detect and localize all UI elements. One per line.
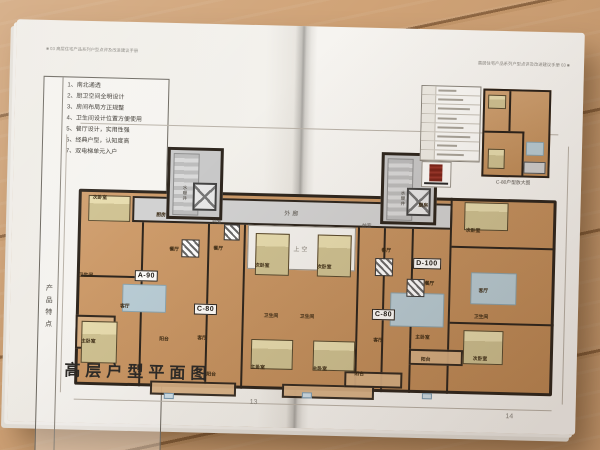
elevation-ground-line — [424, 182, 448, 185]
room-label: 客厅 — [120, 302, 130, 309]
corridor-label: 外廊 — [284, 208, 300, 217]
micro-text-bar — [437, 145, 457, 147]
room-label: 主卧室 — [312, 364, 327, 372]
room-label: 次卧室 — [317, 263, 332, 271]
dimension-marker — [302, 392, 312, 398]
hatched-table — [224, 224, 240, 240]
inset-table-label-cell — [422, 104, 436, 113]
bed — [488, 95, 506, 109]
inset-table-label-cell — [422, 114, 436, 123]
room-label: 次卧室 — [466, 226, 481, 234]
inset-caption: C-80户型放大图 — [483, 178, 544, 187]
micro-text-bar — [437, 154, 464, 157]
inset-table-label-cell — [422, 86, 436, 95]
micro-text-bar — [438, 89, 456, 91]
right-page-header: 高层住宅产品系列户型点评及改进建议手册 03 ■ — [478, 59, 570, 68]
room-label: 次卧室 — [255, 261, 270, 269]
rug — [470, 272, 517, 305]
room-label: 餐厅 — [169, 245, 179, 252]
room-label: 阳台 — [354, 369, 364, 376]
inset-table-label-cell — [421, 150, 435, 159]
inset-table-value-cell — [436, 86, 480, 95]
front-room-label: 前室 — [362, 222, 372, 229]
room-label: 阳台 — [421, 355, 431, 362]
inset-table-value-cell — [436, 114, 480, 123]
inset-spec-table — [420, 85, 482, 162]
bed — [317, 235, 352, 278]
inset-table-value-cell — [436, 105, 480, 114]
room-label: 餐厅 — [425, 279, 435, 286]
micro-text-bar — [438, 99, 463, 102]
page-number-right: 14 — [505, 413, 513, 420]
room-label: 餐厅 — [381, 246, 391, 253]
inset-table-row — [421, 150, 479, 161]
room-label: 客厅 — [478, 286, 488, 293]
dimension-marker — [422, 393, 432, 399]
inset-table-value-cell — [435, 123, 479, 132]
unit-type-badge: A-90 — [135, 270, 158, 282]
plan-caption: 高层户型平面图 — [64, 356, 212, 384]
elevator-icon — [192, 182, 217, 211]
inset-table-value-cell — [435, 132, 479, 141]
room-label: 客厅 — [197, 334, 207, 341]
bed — [255, 233, 290, 276]
plumbing-shaft-label: 水暖井 — [181, 185, 188, 201]
stair-elevator-core — [166, 147, 224, 220]
open-booklet: ■ 03 高层住宅产品系列户型点评及改进建议手册 高层住宅产品系列户型点评及改进… — [7, 19, 585, 435]
inset-table-label-cell — [421, 141, 435, 150]
unit-type-badge: C-80 — [194, 304, 217, 316]
room-label: 主卧室 — [250, 363, 265, 371]
room-label: 卫生间 — [79, 271, 94, 279]
dimension-marker — [164, 393, 174, 399]
room-label: 餐厅 — [213, 244, 223, 251]
hatched-table — [181, 239, 199, 257]
room-label: 次卧室 — [93, 193, 108, 201]
left-page-header: ■ 03 高层住宅产品系列户型点评及改进建议手册 — [46, 45, 138, 54]
unit-type-badge: C-80 — [372, 309, 395, 321]
unit-type-badge: D-100 — [413, 258, 441, 270]
inset-table-label-cell — [422, 95, 436, 104]
room-label: 厨房 — [156, 211, 166, 218]
wall — [508, 91, 511, 131]
micro-text-bar — [437, 126, 463, 129]
hatched-table — [406, 279, 424, 297]
hatched-table — [375, 258, 393, 276]
page-number-left: 13 — [250, 399, 258, 406]
micro-text-bar — [438, 108, 470, 111]
room-label: 主卧室 — [81, 337, 96, 345]
micro-text-bar — [437, 135, 470, 138]
rug — [526, 142, 544, 156]
plumbing-shaft-label: 水暖井 — [399, 191, 406, 207]
room-label: 主卧室 — [415, 333, 430, 341]
building-elevation-thumbnail — [421, 161, 452, 188]
wall — [484, 131, 524, 134]
inset-floor-plan — [481, 89, 551, 179]
room-label: 厨房 — [418, 201, 428, 208]
room-label: 次卧室 — [473, 354, 488, 362]
desk-photo: ■ 03 高层住宅产品系列户型点评及改进建议手册 高层住宅产品系列户型点评及改进… — [0, 0, 600, 450]
room-label: 卫生间 — [264, 311, 279, 319]
rug — [390, 292, 445, 327]
front-room-label: 前室 — [212, 218, 222, 225]
balcony — [409, 349, 463, 366]
inset-table-label-cell — [421, 123, 435, 132]
balcony — [344, 371, 402, 388]
room-label: 卫生间 — [300, 312, 315, 320]
elevation-tower-icon — [429, 164, 442, 181]
balcony — [523, 162, 545, 175]
inset-table-label-cell — [421, 132, 435, 141]
inset-table-value-cell — [435, 151, 479, 160]
micro-text-bar — [438, 117, 457, 119]
dimension-line — [562, 147, 569, 405]
inset-table-value-cell — [436, 96, 480, 105]
room-label: 客厅 — [373, 336, 383, 343]
inset-table-value-cell — [435, 141, 479, 150]
room-label: 阳台 — [159, 335, 169, 342]
bed — [487, 149, 504, 169]
room-label: 卫生间 — [474, 312, 489, 320]
